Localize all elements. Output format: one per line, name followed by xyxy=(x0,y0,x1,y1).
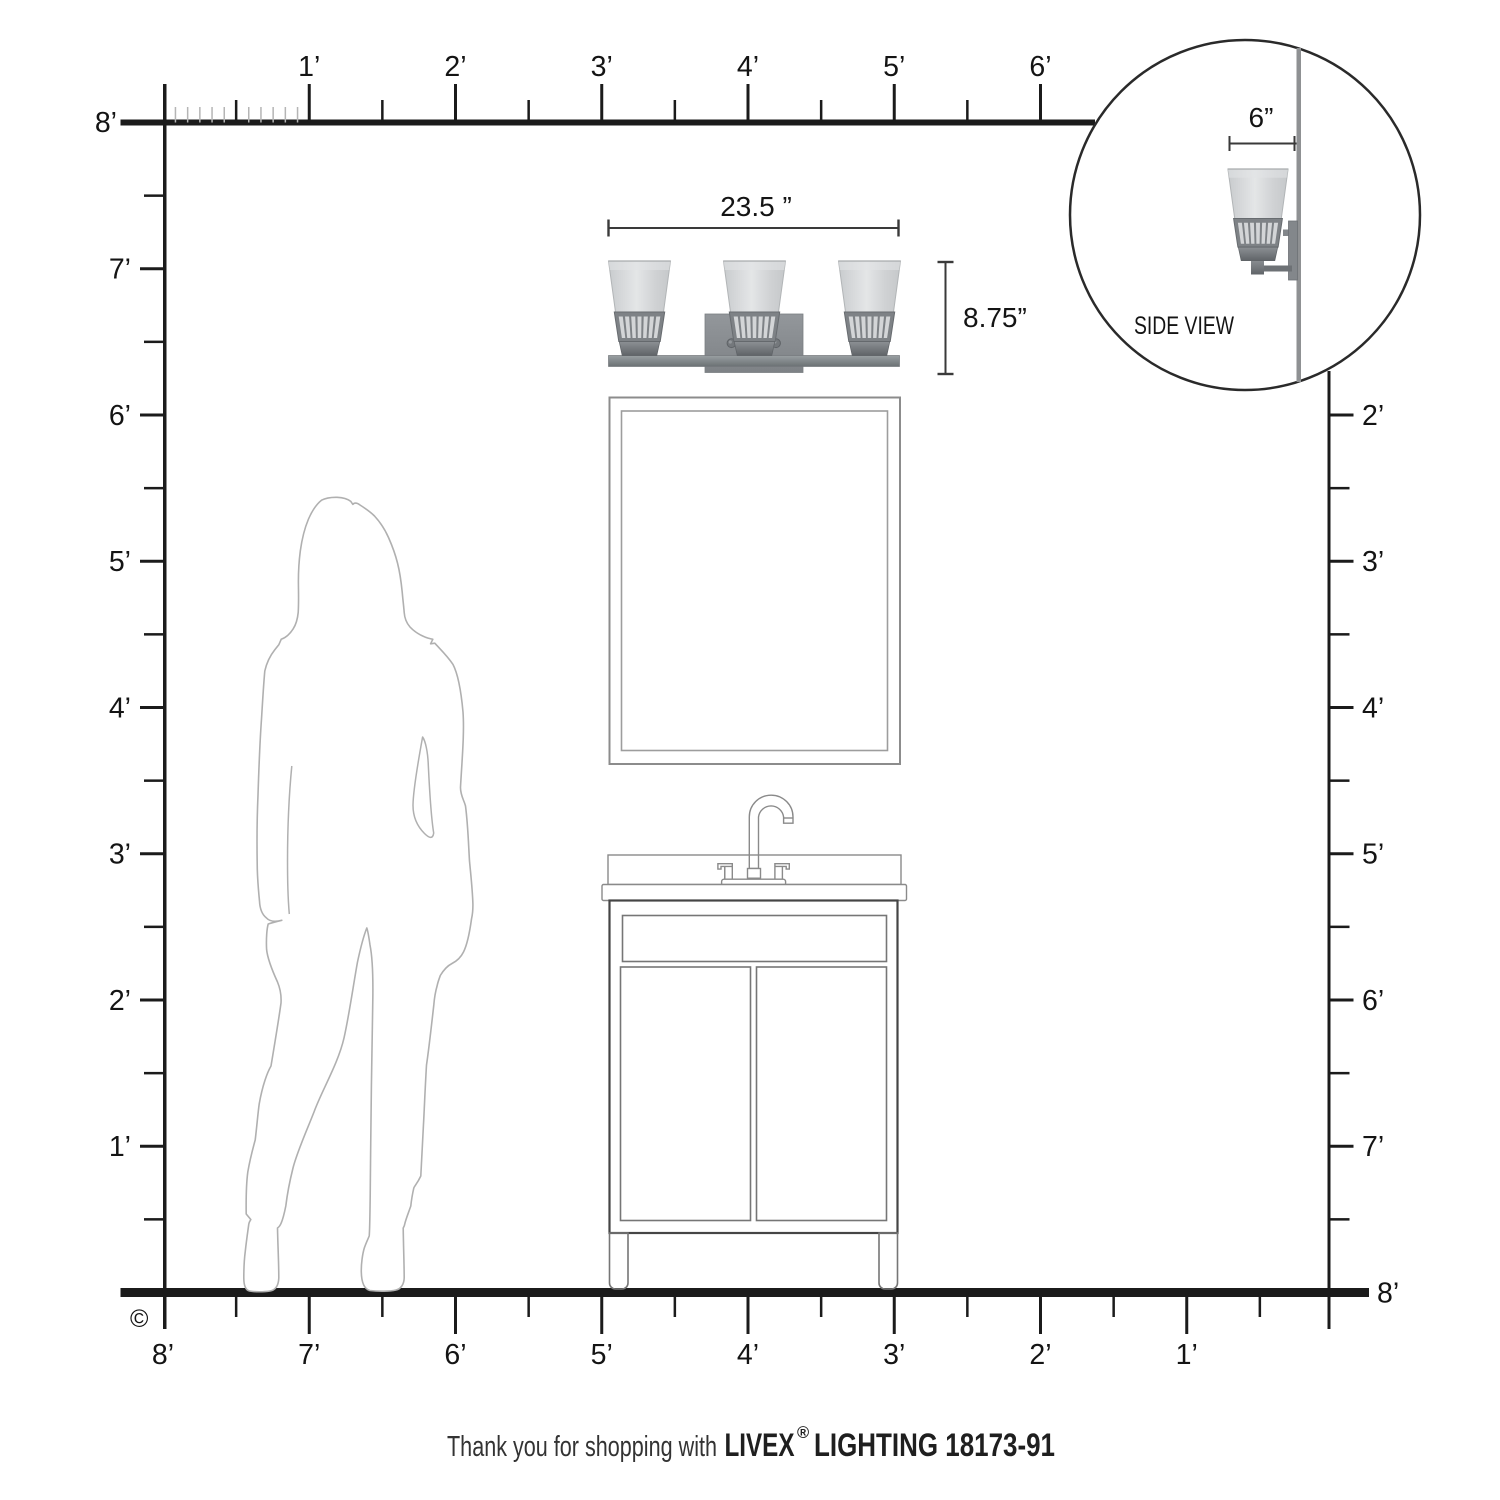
svg-text:5’: 5’ xyxy=(109,546,131,578)
svg-text:5’: 5’ xyxy=(591,1339,613,1371)
svg-text:2’: 2’ xyxy=(1362,400,1384,432)
svg-text:8’: 8’ xyxy=(1377,1278,1399,1310)
svg-text:4’: 4’ xyxy=(737,1339,759,1371)
svg-text:3’: 3’ xyxy=(109,839,131,871)
svg-text:LIGHTING 18173-91: LIGHTING 18173-91 xyxy=(814,1427,1055,1463)
svg-text:7’: 7’ xyxy=(298,1339,320,1371)
svg-text:3’: 3’ xyxy=(591,51,613,83)
svg-text:23.5 ”: 23.5 ” xyxy=(720,191,792,222)
svg-text:6’: 6’ xyxy=(1362,985,1384,1017)
svg-text:LIVEX: LIVEX xyxy=(725,1427,795,1463)
svg-text:2’: 2’ xyxy=(1029,1339,1051,1371)
svg-text:4’: 4’ xyxy=(737,51,759,83)
svg-text:2’: 2’ xyxy=(444,51,466,83)
svg-text:SIDE VIEW: SIDE VIEW xyxy=(1134,312,1234,340)
svg-text:7’: 7’ xyxy=(109,254,131,286)
svg-text:4’: 4’ xyxy=(1362,692,1384,724)
svg-text:6’: 6’ xyxy=(444,1339,466,1371)
svg-text:5’: 5’ xyxy=(1362,839,1384,871)
svg-text:1’: 1’ xyxy=(298,51,320,83)
svg-text:5’: 5’ xyxy=(883,51,905,83)
svg-text:8’: 8’ xyxy=(152,1339,174,1371)
svg-text:4’: 4’ xyxy=(109,692,131,724)
svg-text:1’: 1’ xyxy=(109,1131,131,1163)
svg-text:Thank you for shopping with: Thank you for shopping with xyxy=(447,1431,717,1463)
svg-text:2’: 2’ xyxy=(109,985,131,1017)
svg-text:©: © xyxy=(130,1305,149,1333)
svg-text:6”: 6” xyxy=(1249,102,1274,133)
svg-text:6’: 6’ xyxy=(109,400,131,432)
svg-text:7’: 7’ xyxy=(1362,1131,1384,1163)
svg-text:3’: 3’ xyxy=(1362,546,1384,578)
svg-text:1’: 1’ xyxy=(1176,1339,1198,1371)
svg-text:6’: 6’ xyxy=(1029,51,1051,83)
svg-text:3’: 3’ xyxy=(883,1339,905,1371)
svg-text:®: ® xyxy=(797,1424,809,1442)
svg-text:8’: 8’ xyxy=(95,107,117,139)
svg-text:8.75”: 8.75” xyxy=(963,302,1027,333)
